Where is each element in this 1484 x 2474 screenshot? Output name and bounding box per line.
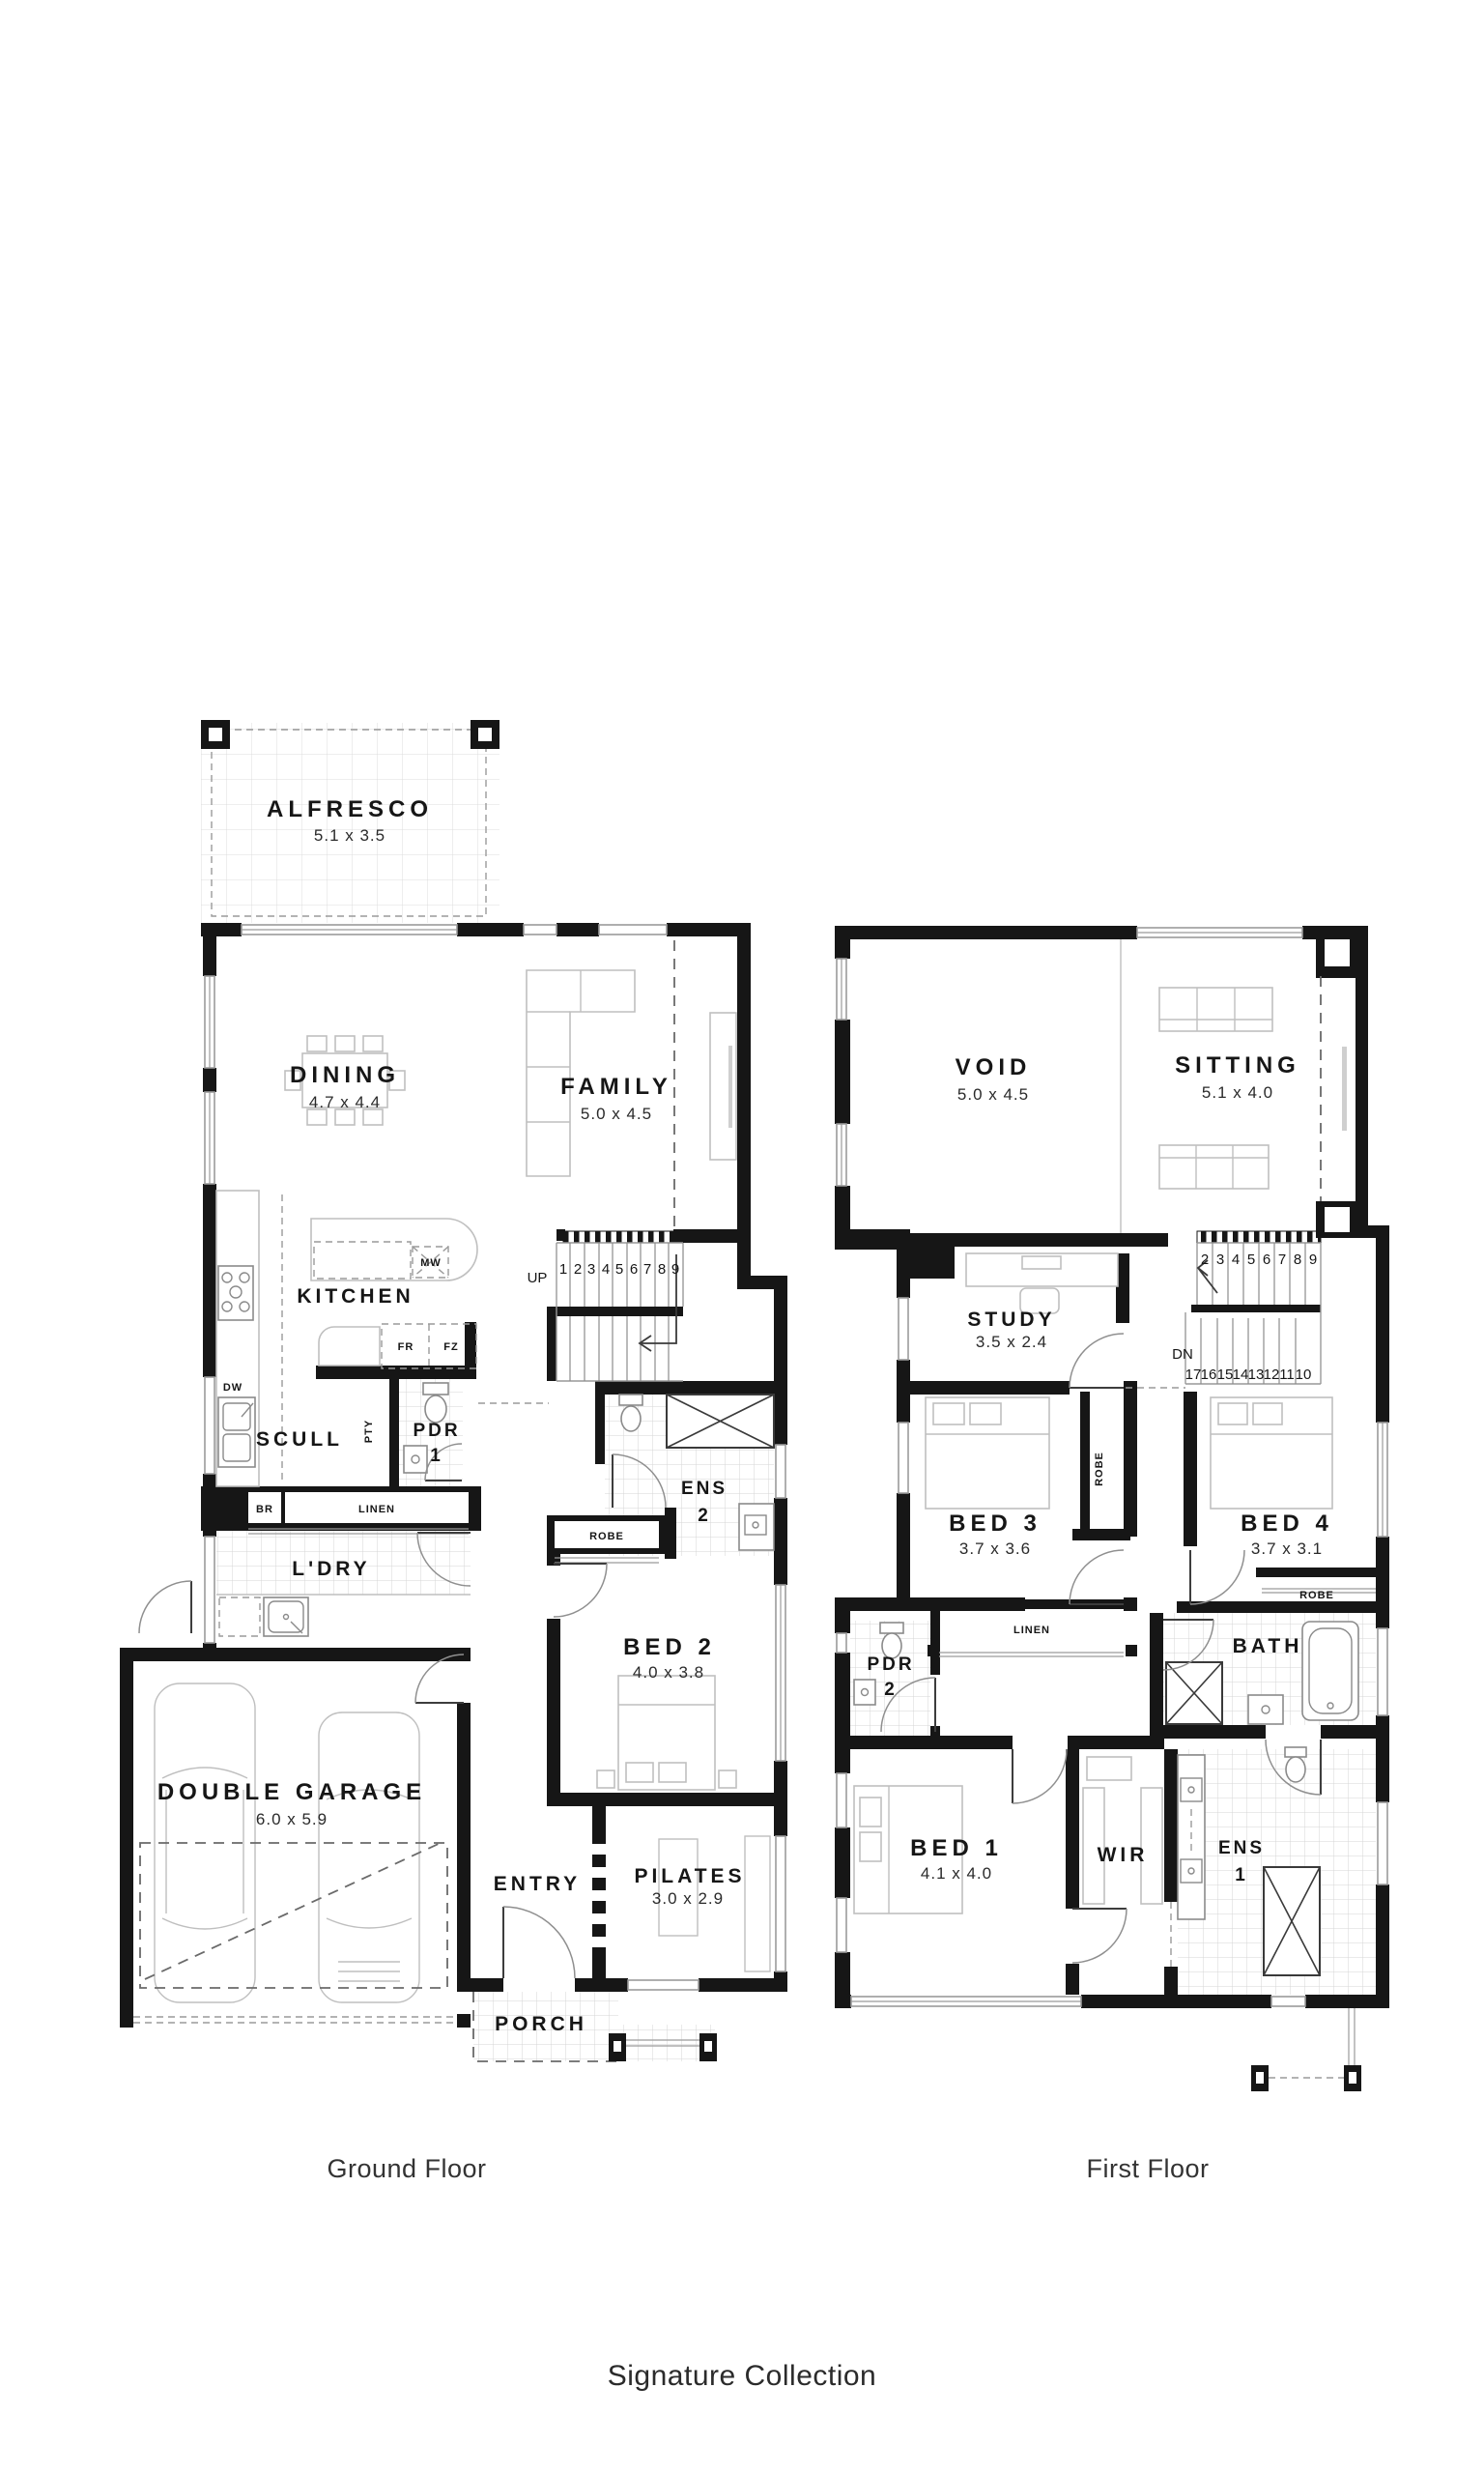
stair-number: 3	[1216, 1251, 1224, 1268]
pdr1-basin	[404, 1446, 427, 1473]
pdr1-label: PDR	[413, 1421, 460, 1441]
ens1-shower	[1264, 1867, 1320, 1975]
garage-apron-dashed	[140, 1843, 447, 1988]
car-outline-2	[319, 1712, 419, 2002]
void-label: VOID	[956, 1054, 1032, 1080]
bathtub	[1302, 1622, 1358, 1720]
stair-number: 11	[1279, 1366, 1295, 1383]
bed4-robe-label: ROBE	[1299, 1590, 1334, 1601]
stair-number: 2	[574, 1261, 582, 1278]
ens2-vanity	[739, 1504, 774, 1550]
cooktop	[218, 1266, 253, 1320]
first-floor-plan: DN 2 3 4 5 6 7 8 9 17 16 15 14 13 12 11 …	[835, 926, 1389, 2091]
stair-number: 5	[1247, 1251, 1255, 1268]
alfresco-post-core	[478, 728, 492, 741]
first-floor-caption: First Floor	[1087, 2154, 1210, 2183]
bed2-furniture	[597, 1676, 736, 1790]
sitting-dims: 5.1 x 4.0	[1202, 1083, 1273, 1102]
dining-label: DINING	[290, 1062, 400, 1088]
island-bench	[311, 1219, 477, 1280]
microwave-label: MW	[420, 1257, 442, 1269]
robe-label: ROBE	[589, 1531, 624, 1542]
sitting-label: SITTING	[1175, 1052, 1300, 1079]
stair-number: 12	[1264, 1366, 1280, 1383]
stair-number: 9	[671, 1261, 679, 1278]
pdr2-basin	[854, 1680, 875, 1705]
stair-number: 7	[1278, 1251, 1286, 1268]
stair-balustrade	[563, 1231, 673, 1243]
stair-number: 6	[630, 1261, 638, 1278]
bed1-label: BED 1	[910, 1835, 1003, 1861]
stair-number: 8	[658, 1261, 666, 1278]
stair-number: 2	[1201, 1251, 1209, 1268]
stair-number: 7	[643, 1261, 651, 1278]
stair-number: 10	[1296, 1366, 1312, 1383]
stair-numbers-ground: 1 2 3 4 5 6 7 8 9	[559, 1261, 679, 1278]
study-label: STUDY	[967, 1309, 1055, 1331]
ens1-toilet	[1285, 1747, 1306, 1782]
stair-number: 8	[1294, 1251, 1301, 1268]
bed3-dims: 3.7 x 3.6	[959, 1539, 1031, 1558]
stair-number: 4	[1232, 1251, 1240, 1268]
ens2-label: ENS	[681, 1479, 728, 1499]
garage-dims: 6.0 x 5.9	[256, 1810, 328, 1828]
pdr2-label: PDR	[867, 1654, 914, 1675]
tv-screen	[728, 1046, 732, 1128]
stair-number: 1	[559, 1261, 567, 1278]
bed2-dims: 4.0 x 3.8	[633, 1663, 704, 1682]
balcony-edge	[1256, 2008, 1356, 2084]
ens2-toilet	[619, 1395, 642, 1431]
stair-number: 13	[1248, 1366, 1265, 1383]
bed4-furniture	[1211, 1397, 1332, 1509]
pdr2-toilet	[880, 1623, 903, 1658]
pilates-dims: 3.0 x 2.9	[652, 1889, 724, 1908]
void-dims: 5.0 x 4.5	[957, 1085, 1029, 1104]
stair-balustrade-first	[1197, 1231, 1321, 1243]
linen-label: LINEN	[358, 1504, 395, 1515]
alfresco-post-core	[209, 728, 222, 741]
stair-number: 4	[602, 1261, 610, 1278]
bath-shower	[1166, 1662, 1222, 1724]
pilates-equipment	[659, 1839, 698, 1936]
wir-shelving	[1083, 1757, 1162, 1904]
floorplan-page: UP 1 2 3 4 5 6 7 8 9	[0, 0, 1484, 2474]
linen-label-first: LINEN	[1013, 1625, 1050, 1636]
freezer-label: FZ	[443, 1341, 458, 1353]
stair-number: 9	[1309, 1251, 1317, 1268]
bed4-dims: 3.7 x 3.1	[1251, 1539, 1323, 1558]
bed3-label: BED 3	[949, 1510, 1042, 1537]
stair-number: 15	[1217, 1366, 1234, 1383]
family-dims: 5.0 x 4.5	[581, 1105, 652, 1123]
ground-floor-caption: Ground Floor	[327, 2154, 486, 2183]
stair-number: 5	[615, 1261, 623, 1278]
broom-label: BR	[256, 1504, 273, 1515]
dishwasher-label: DW	[223, 1382, 243, 1394]
stair-number: 17	[1185, 1366, 1202, 1383]
pdr2-number: 2	[884, 1680, 898, 1700]
alfresco-label: ALFRESCO	[267, 796, 433, 822]
pilates-label: PILATES	[634, 1865, 745, 1887]
bed3-furniture	[926, 1397, 1049, 1509]
bath-label: BATH	[1233, 1635, 1303, 1657]
alfresco-paving	[201, 723, 499, 923]
scullery-label: SCULL	[256, 1428, 343, 1451]
alfresco-dims: 5.1 x 3.5	[314, 826, 385, 845]
bed4-label: BED 4	[1241, 1510, 1333, 1537]
pantry-label: PTY	[363, 1420, 375, 1443]
ens2-shower	[667, 1395, 774, 1448]
sitting-post-core	[1325, 1207, 1350, 1232]
collection-title: Signature Collection	[608, 2360, 877, 2392]
pilates-bench	[745, 1836, 770, 1971]
kitchen-label: KITCHEN	[297, 1285, 414, 1308]
pdr1-toilet	[423, 1383, 448, 1423]
washing-machine	[219, 1597, 260, 1636]
ens1-vanity-bench	[1178, 1755, 1205, 1919]
ens1-number: 1	[1235, 1865, 1248, 1885]
ground-floor-plan: UP 1 2 3 4 5 6 7 8 9	[120, 720, 787, 2061]
stair-number: 3	[587, 1261, 595, 1278]
ens2-number: 2	[698, 1506, 711, 1526]
pdr1-number: 1	[430, 1446, 443, 1466]
family-label: FAMILY	[560, 1074, 672, 1100]
floorplan-drawing: UP 1 2 3 4 5 6 7 8 9	[0, 0, 1484, 2474]
stair-number: 6	[1263, 1251, 1270, 1268]
laundry-trough	[264, 1597, 308, 1636]
stair-numbers-first-bottom: 17 16 15 14 13 12 11 10	[1185, 1366, 1312, 1383]
garage-label: DOUBLE GARAGE	[157, 1779, 426, 1805]
bed3-robe-label: ROBE	[1094, 1452, 1105, 1486]
study-dims: 3.5 x 2.4	[976, 1333, 1047, 1351]
bed1-dims: 4.1 x 4.0	[921, 1864, 992, 1883]
bench-return	[319, 1327, 380, 1366]
stair-number: 16	[1201, 1366, 1217, 1383]
tv-screen-first	[1342, 1047, 1347, 1131]
wir-label: WIR	[1098, 1844, 1149, 1866]
garage-door-dashed	[133, 2017, 457, 2023]
fridge-label: FR	[398, 1341, 414, 1353]
stair-number: 14	[1233, 1366, 1249, 1383]
study-desk	[966, 1253, 1118, 1313]
stair-dn-label: DN	[1172, 1346, 1193, 1363]
fridge-recess	[382, 1324, 476, 1368]
bath-vanity	[1248, 1695, 1283, 1724]
sitting-post-core	[1325, 939, 1350, 966]
dining-dims: 4.7 x 4.4	[309, 1093, 381, 1111]
bed2-label: BED 2	[623, 1634, 716, 1660]
ens1-label: ENS	[1218, 1838, 1265, 1858]
kitchen-sink	[218, 1397, 255, 1467]
laundry-label: L'DRY	[292, 1558, 370, 1580]
porch-label: PORCH	[495, 2013, 587, 2035]
laundry	[216, 1595, 471, 1636]
garage-diagonal-dashed	[145, 1842, 442, 1979]
stair-up-label: UP	[528, 1270, 548, 1286]
entry-label: ENTRY	[494, 1873, 581, 1895]
